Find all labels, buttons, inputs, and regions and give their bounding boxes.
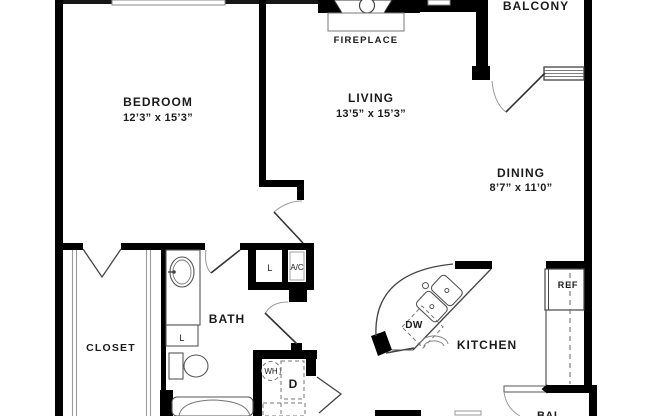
- hall-bath-door: [265, 302, 297, 344]
- top-right-window: [428, 0, 450, 5]
- washer-icon: [263, 403, 305, 416]
- utility-closet-door: [317, 377, 341, 413]
- ac-label: A/C: [290, 263, 304, 272]
- ref-label: REF: [558, 280, 578, 290]
- linen-bath-label: L: [179, 333, 184, 343]
- closet-label: CLOSET: [86, 342, 136, 354]
- bedroom-window: [112, 0, 225, 5]
- balcony-door: [492, 73, 545, 112]
- bath-label: BATH: [209, 312, 245, 326]
- dining-dims: 8’7” x 11’0”: [490, 182, 553, 194]
- balcony-label: BALCONY: [503, 0, 569, 13]
- fireplace-icon: [318, 0, 420, 31]
- range-edge: [455, 411, 481, 415]
- labels: BEDROOM 12’3” x 15’3” LIVING 13’5” x 15’…: [86, 0, 578, 416]
- living-label: LIVING: [348, 91, 394, 105]
- bedroom-dims: 12’3” x 15’3”: [123, 112, 193, 124]
- dryer-label: D: [289, 377, 298, 391]
- wh-label: WH: [264, 367, 278, 376]
- living-dims: 13’5” x 15’3”: [336, 108, 406, 120]
- toilet-icon: [169, 353, 208, 379]
- closet-bifold-door: [83, 249, 121, 277]
- balcony-window: [544, 67, 584, 80]
- closet-shelf-lines: [73, 250, 151, 416]
- bedroom-door: [274, 201, 303, 243]
- exterior-walls: [55, 0, 597, 416]
- linen-hall-label: L: [267, 263, 272, 273]
- bathtub-icon: [172, 397, 253, 416]
- fireplace-label: FIREPLACE: [334, 35, 399, 46]
- floor-plan: BEDROOM 12’3” x 15’3” LIVING 13’5” x 15’…: [0, 0, 652, 416]
- kitchen-label: KITCHEN: [457, 338, 517, 352]
- dining-label: DINING: [497, 166, 545, 180]
- floor-plan-drawing: BEDROOM 12’3” x 15’3” LIVING 13’5” x 15’…: [0, 0, 652, 416]
- kitchen-sink-icon: [409, 268, 464, 323]
- dw-label: DW: [405, 320, 423, 331]
- lower-balcony-label: BAL: [537, 410, 561, 416]
- bedroom-label: BEDROOM: [123, 95, 193, 109]
- bath-door: [206, 250, 240, 273]
